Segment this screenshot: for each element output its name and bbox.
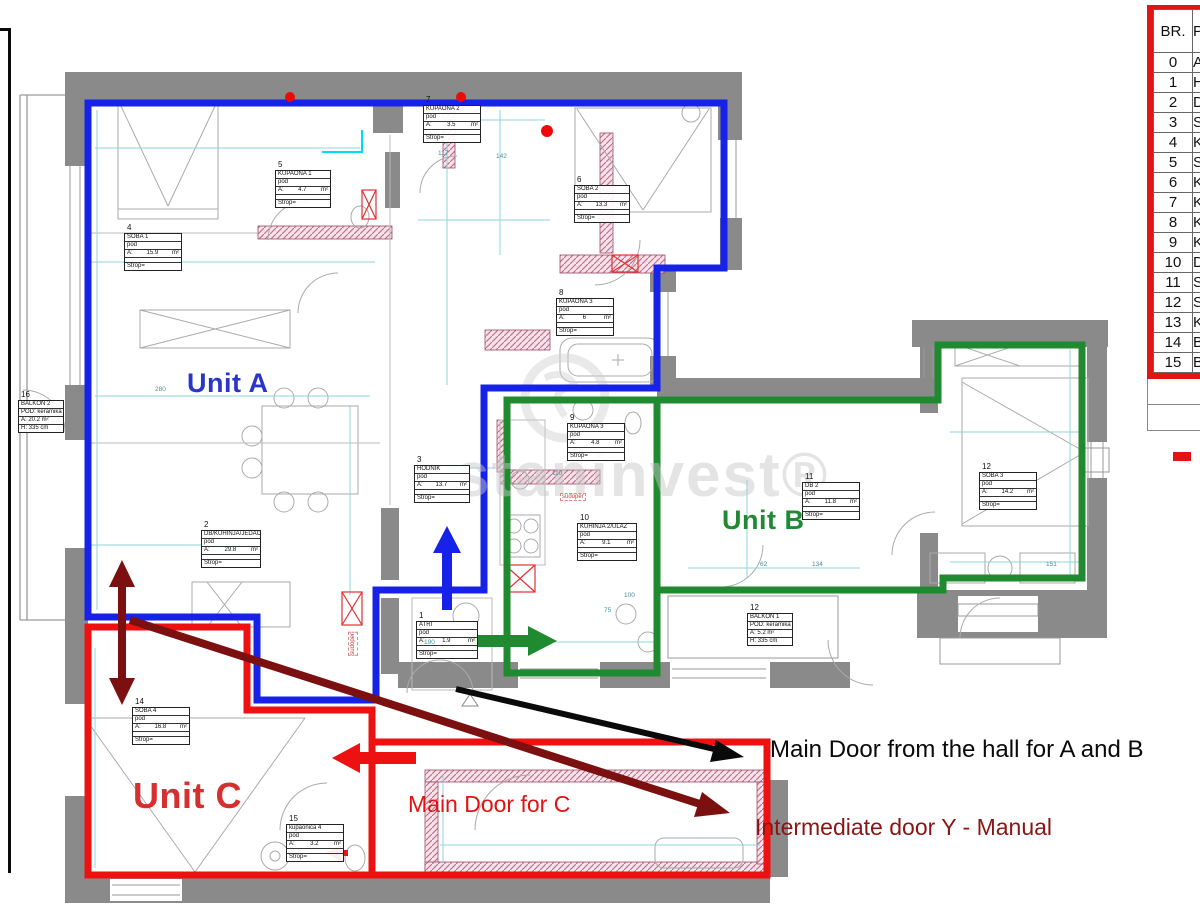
room-label-box: 3HODNIKpodA:13.7m²Strop=: [414, 456, 470, 503]
dimension-label: 142: [496, 153, 507, 160]
legend-row: 3S: [1154, 113, 1200, 133]
dimension-label: 75: [604, 607, 611, 614]
legend-row: 1H: [1154, 73, 1200, 93]
main-door-c-text: Main Door for C: [408, 791, 570, 818]
unit-c-label: Unit C: [133, 775, 242, 817]
room-label-box: 6SOBA 2podA:13.3m²Strop=: [574, 176, 630, 223]
dimension-label: 117: [438, 150, 448, 157]
legend-row: 4K: [1154, 133, 1200, 153]
legend-row: 14B: [1154, 333, 1200, 353]
legend-row: 0A: [1154, 53, 1200, 73]
unit-b-label: Unit B: [722, 505, 804, 536]
legend-row: 13K: [1154, 313, 1200, 333]
dimension-label: 280: [155, 386, 166, 393]
legend-row: 11S: [1154, 273, 1200, 293]
main-door-ab-arrow: [456, 689, 744, 762]
dimension-label: 151: [1046, 561, 1057, 568]
room-label-box: 1ATRIpodA:1.9m²Strop=: [416, 612, 478, 659]
legend-row: 5S: [1154, 153, 1200, 173]
room-label-box: 10KUHINJA 2/ULAZpodA:9.1m²Strop=: [577, 514, 637, 561]
room-label-box: 9KUPAONA 3podA:4.8m²Strop=: [567, 414, 625, 461]
balcony-railing: [20, 95, 65, 620]
legend-red-mark: [1173, 452, 1191, 461]
legend-row: 2D: [1154, 93, 1200, 113]
floor-plan-page: staninvest® Unit A Unit B Unit C Main Do…: [0, 0, 1200, 905]
balcony-label-box: 12BALKON 1POD: keramikaA: 5.2 m²H: 335 c…: [747, 604, 793, 646]
fixture-label: sudoper: [560, 493, 586, 501]
room-label-box: 5KUPAONA 1podA:4.7m²Strop=: [275, 161, 331, 208]
legend-empty-row: [1147, 379, 1200, 405]
unit-a-label: Unit A: [187, 368, 268, 399]
unit-b-direction-arrow: [472, 626, 557, 656]
intermediate-door-swing-arrow: [109, 560, 135, 705]
room-label-box: 11DB 2podA:11.8m²Strop=: [802, 473, 860, 520]
dimension-label: 134: [812, 561, 823, 568]
room-label-box: 15kupaonica 4podA:3.2m²Strop=: [286, 815, 344, 862]
legend-row: 6K: [1154, 173, 1200, 193]
dimension-label: 100: [624, 592, 635, 599]
main-door-ab-text: Main Door from the hall for A and B: [770, 736, 1144, 764]
legend-table: BR.P0A1H2D3S4K5S6K7K8K9K10D11S12S13K14B1…: [1147, 5, 1200, 431]
dimension-label: 190: [424, 639, 435, 646]
unit-a-direction-arrow: [433, 526, 461, 610]
balcony-label-box: 16BALKON 2POD: keramikaA: 20.2 m²H: 335 …: [18, 391, 64, 433]
room-label-box: 12SOBA 3podA:14.2m²Strop=: [979, 463, 1037, 510]
fixture-label: sudoper: [348, 632, 358, 656]
legend-row: 10D: [1154, 253, 1200, 273]
legend-row: 7K: [1154, 193, 1200, 213]
legend-row: 15B: [1154, 353, 1200, 373]
dimension-label: 110: [552, 470, 562, 477]
room-label-box: 4SOBA 1podA:15.9m²Strop=: [124, 224, 182, 271]
legend-row: 9K: [1154, 233, 1200, 253]
legend-empty-row: [1147, 405, 1200, 431]
room-label-box: 14SOBA 4podA:16.8m²Strop=: [132, 698, 190, 745]
intermediate-door-text: Intermediate door Y - Manual: [755, 814, 1052, 841]
legend-row: 12S: [1154, 293, 1200, 313]
dimension-label: 62: [760, 561, 767, 568]
legend-row: 8K: [1154, 213, 1200, 233]
room-label-box: 8KUPAONA 3podA:6m²Strop=: [556, 289, 614, 336]
legend-header-row: BR.P: [1154, 10, 1200, 53]
room-label-box: 7KUPAONA 2podA:3.5m²Strop=: [423, 96, 481, 143]
page-edge-line: [0, 28, 11, 873]
room-label-box: 2DB/KUHINJA/JEDAĆApodA:29.8m²Strop=: [201, 521, 261, 568]
